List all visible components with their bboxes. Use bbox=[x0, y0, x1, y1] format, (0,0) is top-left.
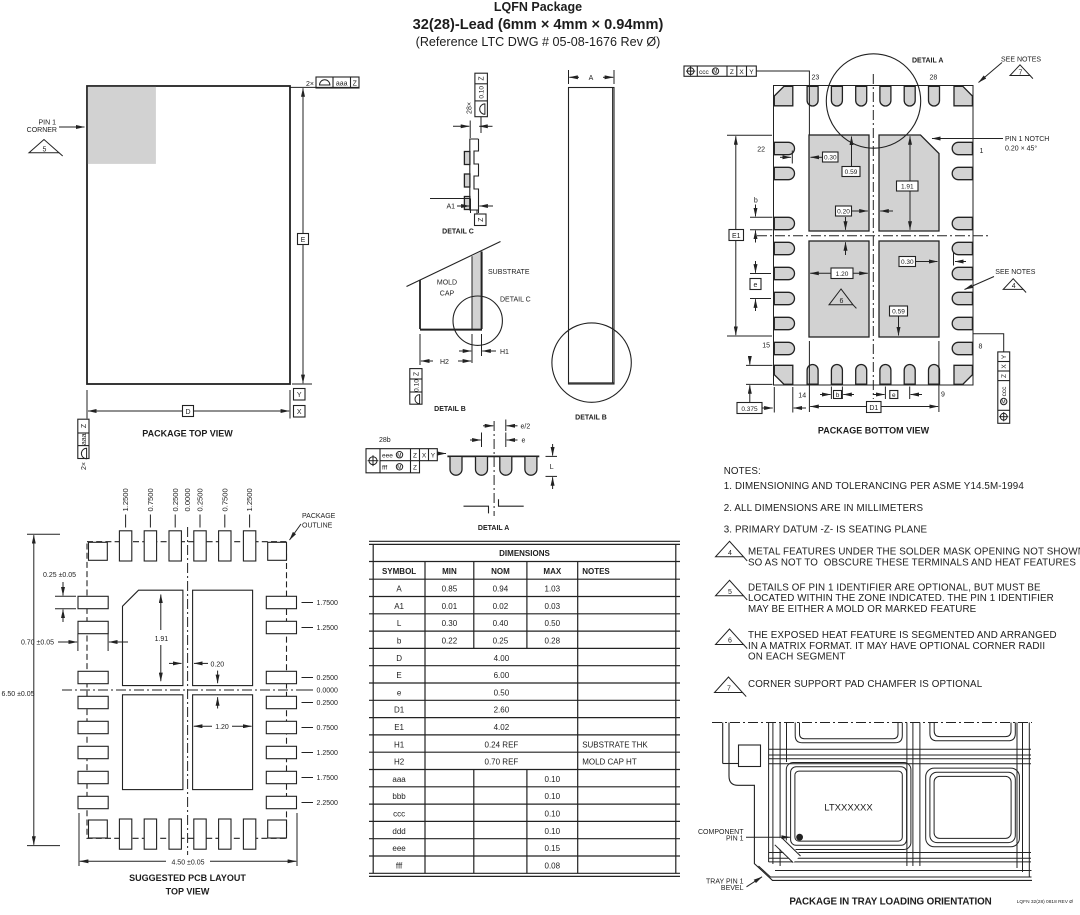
svg-text:28: 28 bbox=[930, 75, 938, 82]
svg-text:TOP VIEW: TOP VIEW bbox=[166, 887, 210, 897]
svg-text:4: 4 bbox=[1012, 283, 1016, 290]
svg-text:D: D bbox=[396, 654, 402, 663]
svg-text:A: A bbox=[396, 585, 402, 594]
svg-text:A: A bbox=[589, 75, 594, 82]
svg-text:0.7500: 0.7500 bbox=[220, 488, 229, 511]
svg-text:H1: H1 bbox=[394, 740, 405, 749]
svg-text:1.91: 1.91 bbox=[901, 184, 914, 191]
svg-text:SUBSTRATE THK: SUBSTRATE THK bbox=[582, 740, 648, 749]
svg-text:MOLD CAP HT: MOLD CAP HT bbox=[582, 758, 637, 767]
svg-text:0.25: 0.25 bbox=[493, 637, 509, 646]
svg-text:32(28)-Lead (6mm × 4mm × 0.94m: 32(28)-Lead (6mm × 4mm × 0.94mm) bbox=[413, 17, 664, 33]
svg-text:4: 4 bbox=[728, 550, 732, 557]
svg-text:22: 22 bbox=[757, 147, 765, 154]
svg-text:A1: A1 bbox=[446, 204, 455, 211]
svg-text:E: E bbox=[301, 237, 306, 244]
svg-text:Y: Y bbox=[749, 69, 754, 76]
svg-text:LOCATED WITHIN THE ZONE INDICA: LOCATED WITHIN THE ZONE INDICATED. THE P… bbox=[748, 593, 1054, 604]
svg-text:2×: 2× bbox=[81, 462, 88, 470]
svg-text:Z: Z bbox=[81, 423, 88, 428]
svg-text:0.94: 0.94 bbox=[493, 585, 509, 594]
svg-text:H2: H2 bbox=[394, 758, 405, 767]
svg-text:aaa: aaa bbox=[336, 81, 348, 88]
svg-text:DETAIL B: DETAIL B bbox=[434, 406, 466, 413]
svg-text:Z: Z bbox=[479, 76, 486, 81]
svg-text:0.02: 0.02 bbox=[493, 602, 509, 611]
svg-text:1.2500: 1.2500 bbox=[245, 488, 254, 511]
svg-text:fff: fff bbox=[382, 465, 387, 472]
svg-text:14: 14 bbox=[798, 393, 806, 400]
svg-text:MOLD: MOLD bbox=[437, 280, 457, 287]
svg-text:0.0000: 0.0000 bbox=[317, 688, 339, 695]
svg-text:NOTES: NOTES bbox=[582, 567, 610, 576]
svg-text:PACKAGE IN TRAY LOADING ORIENT: PACKAGE IN TRAY LOADING ORIENTATION bbox=[789, 897, 991, 908]
svg-text:0.0000: 0.0000 bbox=[183, 488, 192, 511]
svg-text:1: 1 bbox=[980, 148, 984, 155]
svg-text:E: E bbox=[396, 671, 401, 680]
svg-text:PACKAGE TOP VIEW: PACKAGE TOP VIEW bbox=[142, 429, 233, 439]
svg-text:ddd: ddd bbox=[392, 827, 405, 836]
svg-text:b: b bbox=[397, 637, 402, 646]
svg-text:2×: 2× bbox=[306, 81, 314, 88]
svg-text:0.15: 0.15 bbox=[545, 844, 561, 853]
svg-text:E1: E1 bbox=[394, 723, 404, 732]
svg-text:0.28: 0.28 bbox=[545, 637, 561, 646]
svg-text:Z: Z bbox=[730, 69, 734, 76]
svg-text:DETAIL C: DETAIL C bbox=[500, 297, 531, 304]
svg-text:e: e bbox=[754, 282, 758, 289]
svg-text:Z: Z bbox=[413, 464, 417, 471]
svg-text:b: b bbox=[754, 198, 758, 205]
svg-text:0.70 ±0.05: 0.70 ±0.05 bbox=[21, 640, 54, 647]
svg-text:SUBSTRATE: SUBSTRATE bbox=[488, 269, 530, 276]
svg-text:ccc: ccc bbox=[1001, 386, 1008, 397]
svg-text:NOM: NOM bbox=[491, 567, 510, 576]
svg-text:0.30: 0.30 bbox=[901, 259, 914, 266]
svg-text:Z: Z bbox=[413, 452, 417, 459]
svg-text:0.40: 0.40 bbox=[493, 619, 509, 628]
svg-text:Y: Y bbox=[431, 452, 436, 459]
svg-text:0.10: 0.10 bbox=[479, 86, 486, 99]
svg-text:0.01: 0.01 bbox=[442, 602, 458, 611]
svg-text:CORNER SUPPORT PAD CHAMFER IS: CORNER SUPPORT PAD CHAMFER IS OPTIONAL bbox=[748, 679, 983, 690]
svg-text:4.00: 4.00 bbox=[494, 654, 510, 663]
svg-text:0.25 ±0.05: 0.25 ±0.05 bbox=[43, 572, 76, 579]
svg-text:X: X bbox=[739, 69, 744, 76]
svg-text:Z: Z bbox=[1001, 374, 1008, 378]
svg-text:0.59: 0.59 bbox=[892, 309, 905, 316]
svg-text:0.50: 0.50 bbox=[494, 688, 510, 697]
svg-text:0.85: 0.85 bbox=[442, 585, 458, 594]
svg-text:e: e bbox=[522, 438, 526, 445]
svg-text:5: 5 bbox=[43, 147, 47, 154]
svg-text:0.7500: 0.7500 bbox=[146, 488, 155, 511]
svg-text:bbb: bbb bbox=[392, 792, 406, 801]
svg-text:THE EXPOSED HEAT FEATURE IS SE: THE EXPOSED HEAT FEATURE IS SEGMENTED AN… bbox=[748, 630, 1057, 641]
svg-text:0.30: 0.30 bbox=[824, 155, 837, 162]
svg-text:DETAILS OF PIN 1 IDENTIFIER AR: DETAILS OF PIN 1 IDENTIFIER ARE OPTIONAL… bbox=[748, 582, 1041, 593]
svg-text:1.91: 1.91 bbox=[155, 636, 169, 643]
svg-text:0.10: 0.10 bbox=[545, 792, 561, 801]
svg-text:Z: Z bbox=[413, 371, 420, 376]
svg-text:M: M bbox=[713, 69, 717, 75]
svg-text:M: M bbox=[397, 453, 401, 459]
svg-text:e: e bbox=[892, 392, 896, 399]
svg-text:SO AS NOT TO OBSCURE THESE TE: SO AS NOT TO OBSCURE THESE TERMINALS AND… bbox=[748, 558, 1076, 569]
svg-text:0.59: 0.59 bbox=[845, 169, 858, 176]
svg-text:M: M bbox=[397, 465, 401, 471]
svg-text:0.20: 0.20 bbox=[211, 662, 225, 669]
svg-text:4.50 ±0.05: 4.50 ±0.05 bbox=[171, 859, 204, 866]
svg-text:MIN: MIN bbox=[442, 567, 457, 576]
svg-text:LQFN Package: LQFN Package bbox=[494, 0, 582, 14]
svg-text:0.50: 0.50 bbox=[545, 619, 561, 628]
svg-text:0.10: 0.10 bbox=[413, 379, 420, 392]
svg-text:BEVEL: BEVEL bbox=[721, 885, 744, 892]
svg-text:0.10: 0.10 bbox=[545, 810, 561, 819]
svg-text:9: 9 bbox=[941, 392, 945, 399]
svg-text:eee: eee bbox=[392, 844, 406, 853]
svg-text:1. DIMENSIONING AND TOLERANCIN: 1. DIMENSIONING AND TOLERANCING PER ASME… bbox=[724, 481, 1025, 492]
svg-text:b: b bbox=[836, 392, 840, 399]
svg-text:23: 23 bbox=[812, 75, 820, 82]
svg-text:1.2500: 1.2500 bbox=[121, 488, 130, 511]
svg-text:H1: H1 bbox=[500, 349, 509, 356]
svg-text:0.70 REF: 0.70 REF bbox=[485, 758, 519, 767]
svg-text:7: 7 bbox=[1019, 69, 1023, 76]
svg-text:M: M bbox=[1001, 400, 1005, 406]
svg-text:0.22: 0.22 bbox=[442, 637, 458, 646]
svg-text:1.7500: 1.7500 bbox=[317, 600, 339, 607]
svg-text:0.10: 0.10 bbox=[545, 827, 561, 836]
svg-text:aaa: aaa bbox=[392, 775, 406, 784]
svg-text:0.375: 0.375 bbox=[741, 406, 758, 413]
svg-text:0.7500: 0.7500 bbox=[317, 725, 339, 732]
svg-text:0.2500: 0.2500 bbox=[196, 488, 205, 511]
svg-text:D: D bbox=[185, 409, 190, 416]
svg-text:SEE NOTES: SEE NOTES bbox=[1001, 57, 1041, 64]
svg-text:aaa: aaa bbox=[81, 433, 88, 445]
svg-text:LTXXXXXX: LTXXXXXX bbox=[824, 803, 873, 814]
svg-text:L: L bbox=[550, 464, 554, 471]
svg-text:SUGGESTED PCB LAYOUT: SUGGESTED PCB LAYOUT bbox=[129, 873, 246, 883]
svg-text:MAX: MAX bbox=[543, 567, 561, 576]
svg-text:ccc: ccc bbox=[393, 810, 405, 819]
svg-text:e/2: e/2 bbox=[521, 424, 531, 431]
svg-text:0.10: 0.10 bbox=[545, 775, 561, 784]
svg-text:Z: Z bbox=[353, 81, 358, 88]
svg-text:METAL FEATURES UNDER THE SOLDE: METAL FEATURES UNDER THE SOLDER MASK OPE… bbox=[748, 547, 1080, 558]
svg-text:PIN 1 NOTCH: PIN 1 NOTCH bbox=[1005, 136, 1049, 143]
svg-text:E1: E1 bbox=[732, 233, 741, 240]
svg-text:L: L bbox=[397, 619, 402, 628]
svg-text:Y: Y bbox=[1001, 354, 1008, 359]
svg-text:PIN 1: PIN 1 bbox=[726, 836, 744, 843]
svg-text:NOTES:: NOTES: bbox=[724, 466, 761, 477]
svg-text:ON EACH SEGMENT: ON EACH SEGMENT bbox=[748, 652, 846, 663]
svg-text:1.20: 1.20 bbox=[215, 724, 229, 731]
svg-text:A1: A1 bbox=[394, 602, 404, 611]
svg-text:6.50 ±0.05: 6.50 ±0.05 bbox=[2, 691, 35, 698]
svg-text:6.00: 6.00 bbox=[494, 671, 510, 680]
svg-text:0.2500: 0.2500 bbox=[317, 700, 339, 707]
svg-text:1.7500: 1.7500 bbox=[317, 775, 339, 782]
svg-text:6: 6 bbox=[728, 638, 732, 645]
svg-text:5: 5 bbox=[728, 589, 732, 596]
svg-text:DETAIL A: DETAIL A bbox=[478, 525, 509, 532]
svg-text:1.2500: 1.2500 bbox=[317, 625, 339, 632]
svg-text:4.02: 4.02 bbox=[494, 723, 510, 732]
svg-text:(Reference LTC DWG # 05-08-167: (Reference LTC DWG # 05-08-1676 Rev Ø) bbox=[416, 35, 661, 49]
svg-text:28b: 28b bbox=[379, 437, 391, 444]
svg-text:SEE NOTES: SEE NOTES bbox=[995, 269, 1035, 276]
svg-text:1.03: 1.03 bbox=[545, 585, 561, 594]
svg-text:0.2500: 0.2500 bbox=[317, 675, 339, 682]
svg-text:28×: 28× bbox=[467, 102, 474, 114]
svg-text:OUTLINE: OUTLINE bbox=[302, 523, 333, 530]
svg-text:H2: H2 bbox=[440, 359, 449, 366]
svg-text:CORNER: CORNER bbox=[27, 127, 57, 134]
svg-text:7: 7 bbox=[727, 686, 731, 693]
svg-text:15: 15 bbox=[762, 343, 770, 350]
svg-text:6: 6 bbox=[840, 298, 844, 305]
svg-text:X: X bbox=[1001, 364, 1008, 369]
svg-text:PACKAGE BOTTOM VIEW: PACKAGE BOTTOM VIEW bbox=[818, 426, 930, 436]
svg-text:8: 8 bbox=[979, 344, 983, 351]
svg-text:ccc: ccc bbox=[699, 69, 710, 76]
svg-text:DIMENSIONS: DIMENSIONS bbox=[499, 549, 550, 558]
svg-text:IN A MATRIX FORMAT. IT MAY HAV: IN A MATRIX FORMAT. IT MAY HAVE OPTIONAL… bbox=[748, 641, 1045, 652]
svg-text:e: e bbox=[397, 688, 402, 697]
svg-text:PACKAGE: PACKAGE bbox=[302, 513, 336, 520]
svg-text:0.2500: 0.2500 bbox=[171, 488, 180, 511]
svg-text:0.08: 0.08 bbox=[545, 861, 561, 870]
svg-text:D1: D1 bbox=[394, 706, 405, 715]
svg-text:Y: Y bbox=[297, 392, 302, 399]
svg-text:1.20: 1.20 bbox=[836, 271, 849, 278]
svg-text:3. PRIMARY DATUM -Z- IS SEATIN: 3. PRIMARY DATUM -Z- IS SEATING PLANE bbox=[724, 525, 928, 536]
svg-text:D1: D1 bbox=[869, 405, 878, 412]
svg-text:CAP: CAP bbox=[440, 291, 455, 298]
svg-text:MAY BE EITHER A MOLD OR MARKED: MAY BE EITHER A MOLD OR MARKED FEATURE bbox=[748, 604, 977, 615]
svg-text:Z: Z bbox=[478, 217, 485, 222]
svg-text:0.20: 0.20 bbox=[837, 209, 850, 216]
svg-text:2.60: 2.60 bbox=[494, 706, 510, 715]
svg-text:2. ALL DIMENSIONS ARE IN MILLI: 2. ALL DIMENSIONS ARE IN MILLIMETERS bbox=[724, 503, 924, 514]
svg-text:1.2500: 1.2500 bbox=[317, 750, 339, 757]
svg-text:eee: eee bbox=[382, 453, 393, 460]
svg-text:DETAIL A: DETAIL A bbox=[912, 58, 943, 65]
svg-text:PIN 1: PIN 1 bbox=[38, 120, 56, 127]
svg-text:2.2500: 2.2500 bbox=[317, 800, 339, 807]
svg-text:0.20 × 45°: 0.20 × 45° bbox=[1005, 145, 1037, 153]
svg-text:0.03: 0.03 bbox=[545, 602, 561, 611]
svg-text:X: X bbox=[422, 452, 427, 459]
svg-text:X: X bbox=[297, 409, 302, 416]
svg-text:fff: fff bbox=[396, 861, 403, 870]
svg-text:DETAIL B: DETAIL B bbox=[575, 415, 607, 422]
svg-text:DETAIL C: DETAIL C bbox=[442, 229, 474, 236]
svg-text:SYMBOL: SYMBOL bbox=[382, 567, 416, 576]
svg-text:0.24 REF: 0.24 REF bbox=[485, 740, 519, 749]
svg-text:0.30: 0.30 bbox=[442, 619, 458, 628]
svg-text:LQFN 32(28) 0818 REV Ø: LQFN 32(28) 0818 REV Ø bbox=[1017, 899, 1074, 905]
